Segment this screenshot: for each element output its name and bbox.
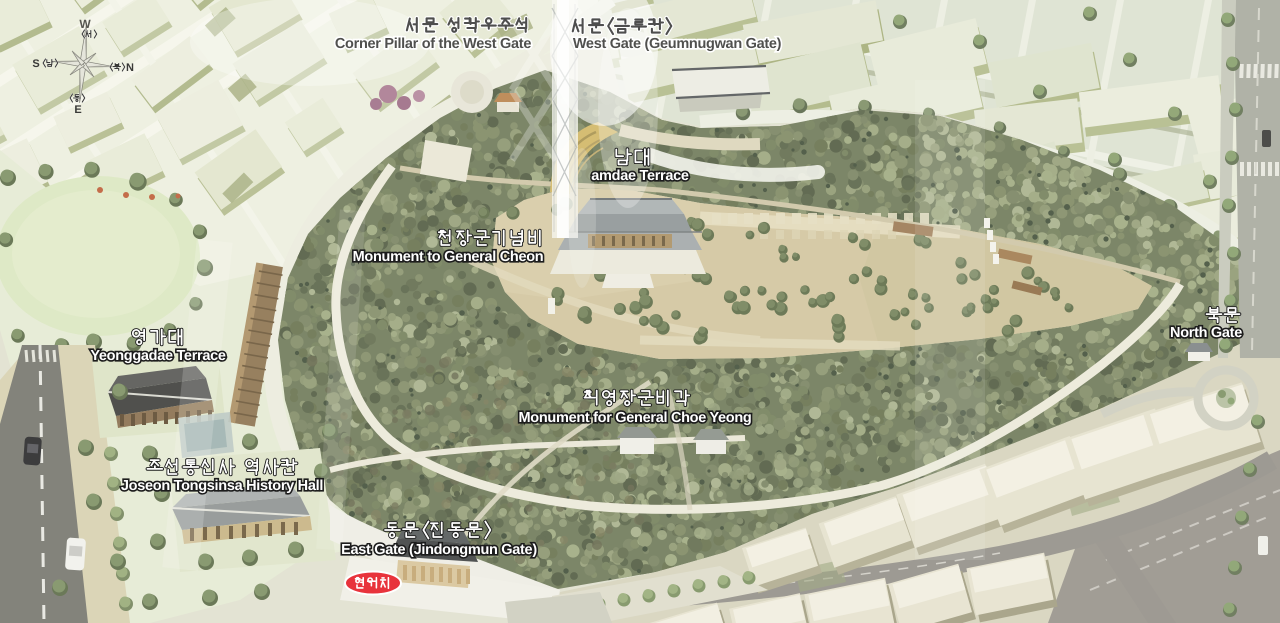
svg-text:Monument to General Cheon: Monument to General Cheon — [353, 249, 544, 265]
svg-text:S: S — [32, 58, 39, 70]
svg-text:West Gate (Geumnugwan Gate): West Gate (Geumnugwan Gate) — [573, 36, 782, 52]
svg-text:Monument for General Choe Yeon: Monument for General Choe Yeong — [519, 410, 752, 426]
svg-text:Corner Pillar of the West Gate: Corner Pillar of the West Gate — [335, 36, 531, 52]
svg-text:amdae Terrace: amdae Terrace — [591, 168, 689, 184]
svg-text:E: E — [74, 104, 81, 116]
svg-text:North Gate: North Gate — [1170, 325, 1242, 341]
svg-text:Joseon Tongsinsa History Hall: Joseon Tongsinsa History Hall — [121, 478, 323, 494]
svg-text:East Gate (Jindongmun Gate): East Gate (Jindongmun Gate) — [341, 542, 537, 558]
svg-text:Yeonggadae Terrace: Yeonggadae Terrace — [90, 348, 226, 364]
svg-text:N: N — [126, 62, 134, 74]
